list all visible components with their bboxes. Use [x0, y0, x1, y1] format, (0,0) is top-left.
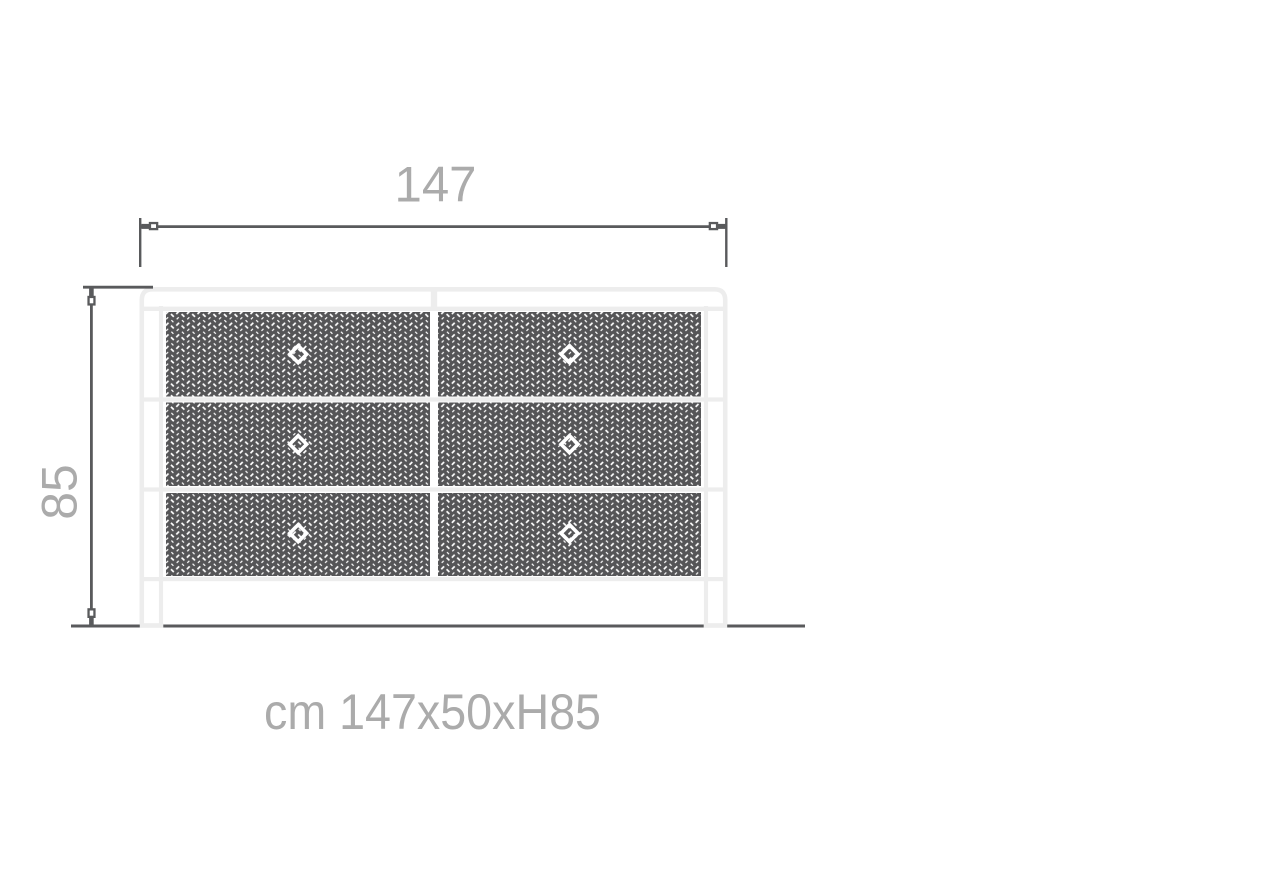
svg-text:85: 85 — [32, 464, 88, 520]
svg-text:cm 147x50xH85: cm 147x50xH85 — [264, 684, 601, 740]
svg-text:147: 147 — [395, 157, 477, 213]
